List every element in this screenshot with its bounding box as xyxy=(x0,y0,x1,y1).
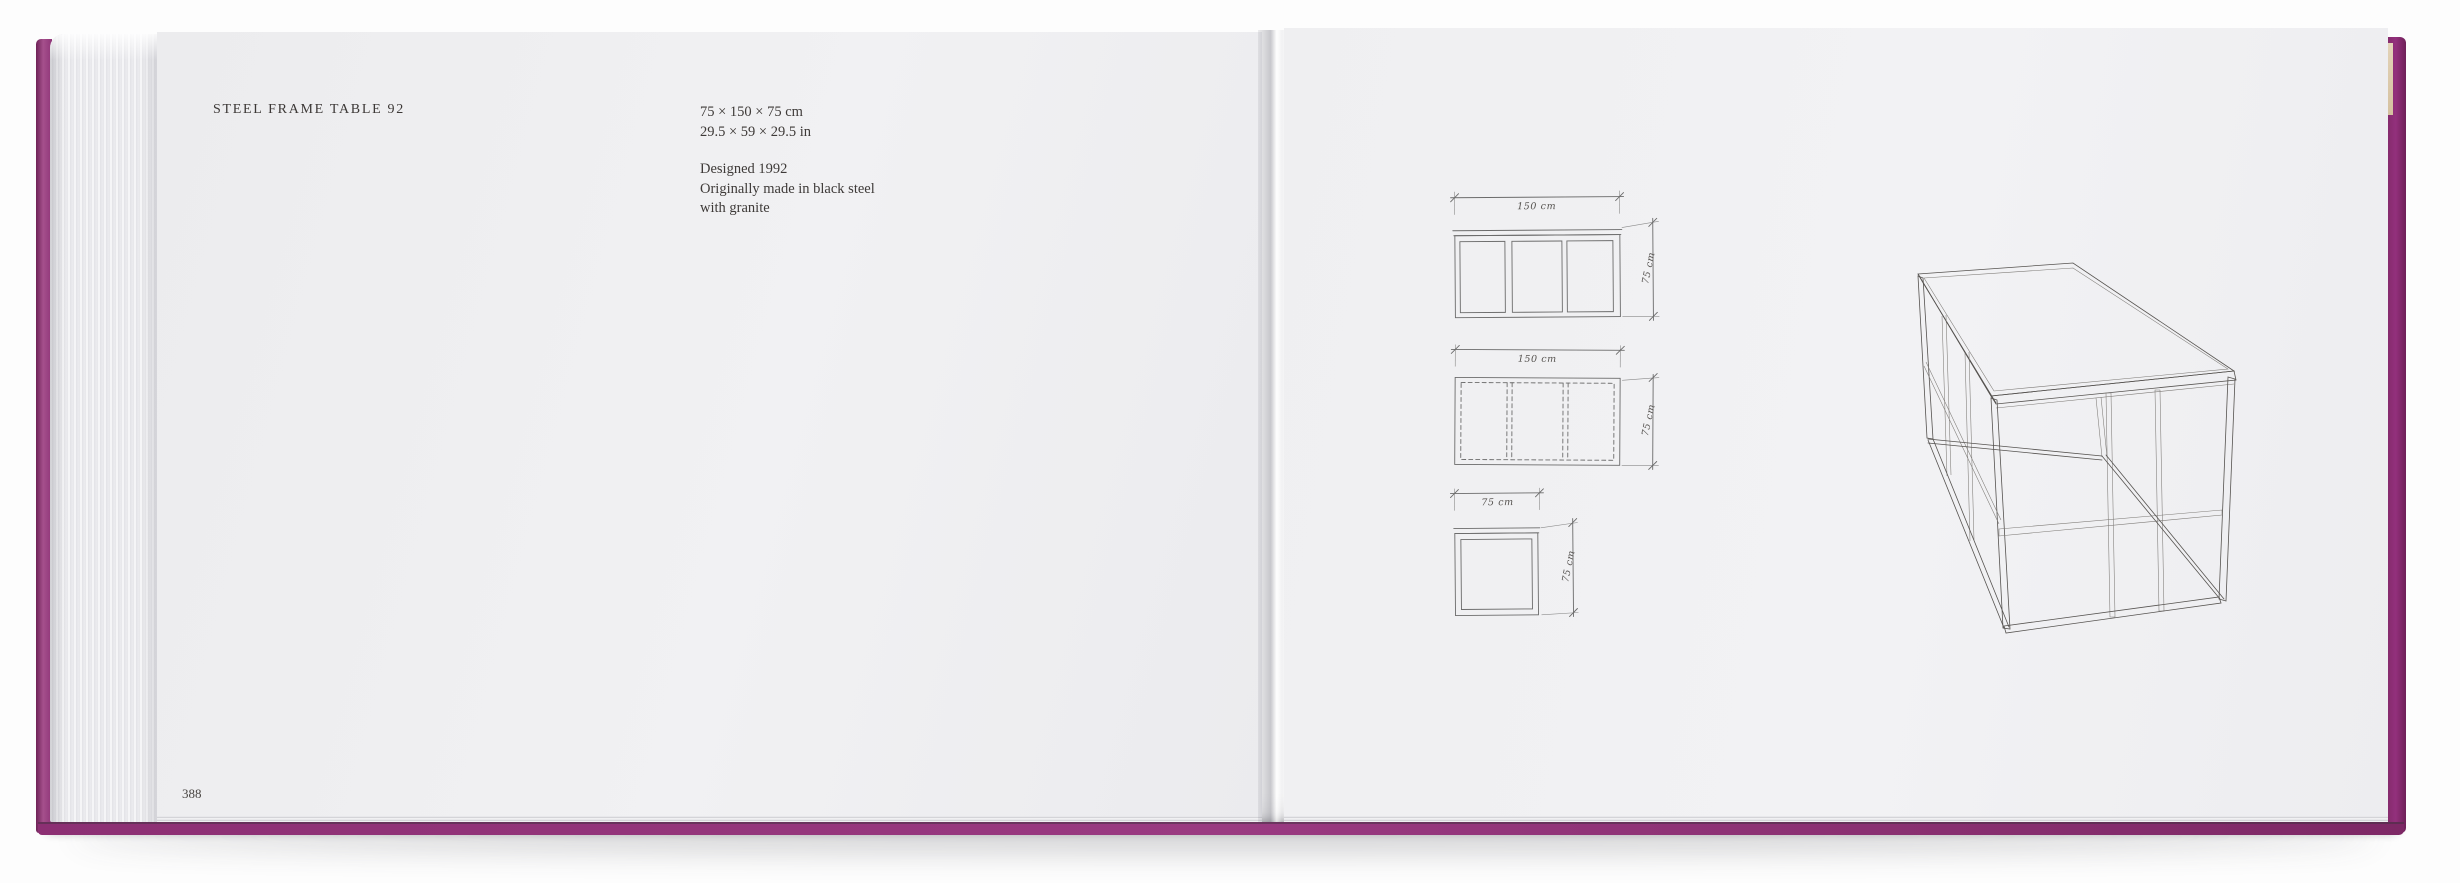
plan-width-label: 150 cm xyxy=(1518,354,1557,365)
plan-view-drawing: 150 cm 75 cm xyxy=(1445,343,1675,475)
front-width-label: 150 cm xyxy=(1517,201,1556,212)
side-view-drawing: 75 cm 75 cm xyxy=(1445,485,1595,627)
side-height-label: 75 cm xyxy=(1560,549,1577,583)
right-page: 150 cm 75 cm xyxy=(1284,28,2388,822)
table-wireframe xyxy=(1918,263,2236,633)
book-spread: STEEL FRAME TABLE 92 75 × 150 × 75 cm 29… xyxy=(36,18,2406,833)
page-title: STEEL FRAME TABLE 92 xyxy=(213,102,405,118)
spec-block: 75 × 150 × 75 cm 29.5 × 59 × 29.5 in Des… xyxy=(700,103,875,237)
page-number: 388 xyxy=(182,786,202,802)
side-width-label: 75 cm xyxy=(1481,497,1514,508)
front-height-label: 75 cm xyxy=(1640,251,1657,285)
material-line: Originally made in black steel xyxy=(700,180,875,200)
front-view-drawing: 150 cm 75 cm xyxy=(1445,188,1675,328)
isometric-table-drawing xyxy=(1890,250,2250,650)
book-photo: STEEL FRAME TABLE 92 75 × 150 × 75 cm 29… xyxy=(0,0,2460,883)
left-page: STEEL FRAME TABLE 92 75 × 150 × 75 cm 29… xyxy=(157,32,1262,822)
plan-depth-label: 75 cm xyxy=(1640,403,1658,437)
dimensions-cm: 75 × 150 × 75 cm xyxy=(700,103,875,123)
material-line2: with granite xyxy=(700,199,875,219)
design-year: Designed 1992 xyxy=(700,160,875,180)
cover-bottom-edge xyxy=(38,822,2404,835)
page-stack-fore-edge xyxy=(50,34,157,822)
dimensions-in: 29.5 × 59 × 29.5 in xyxy=(700,123,875,143)
